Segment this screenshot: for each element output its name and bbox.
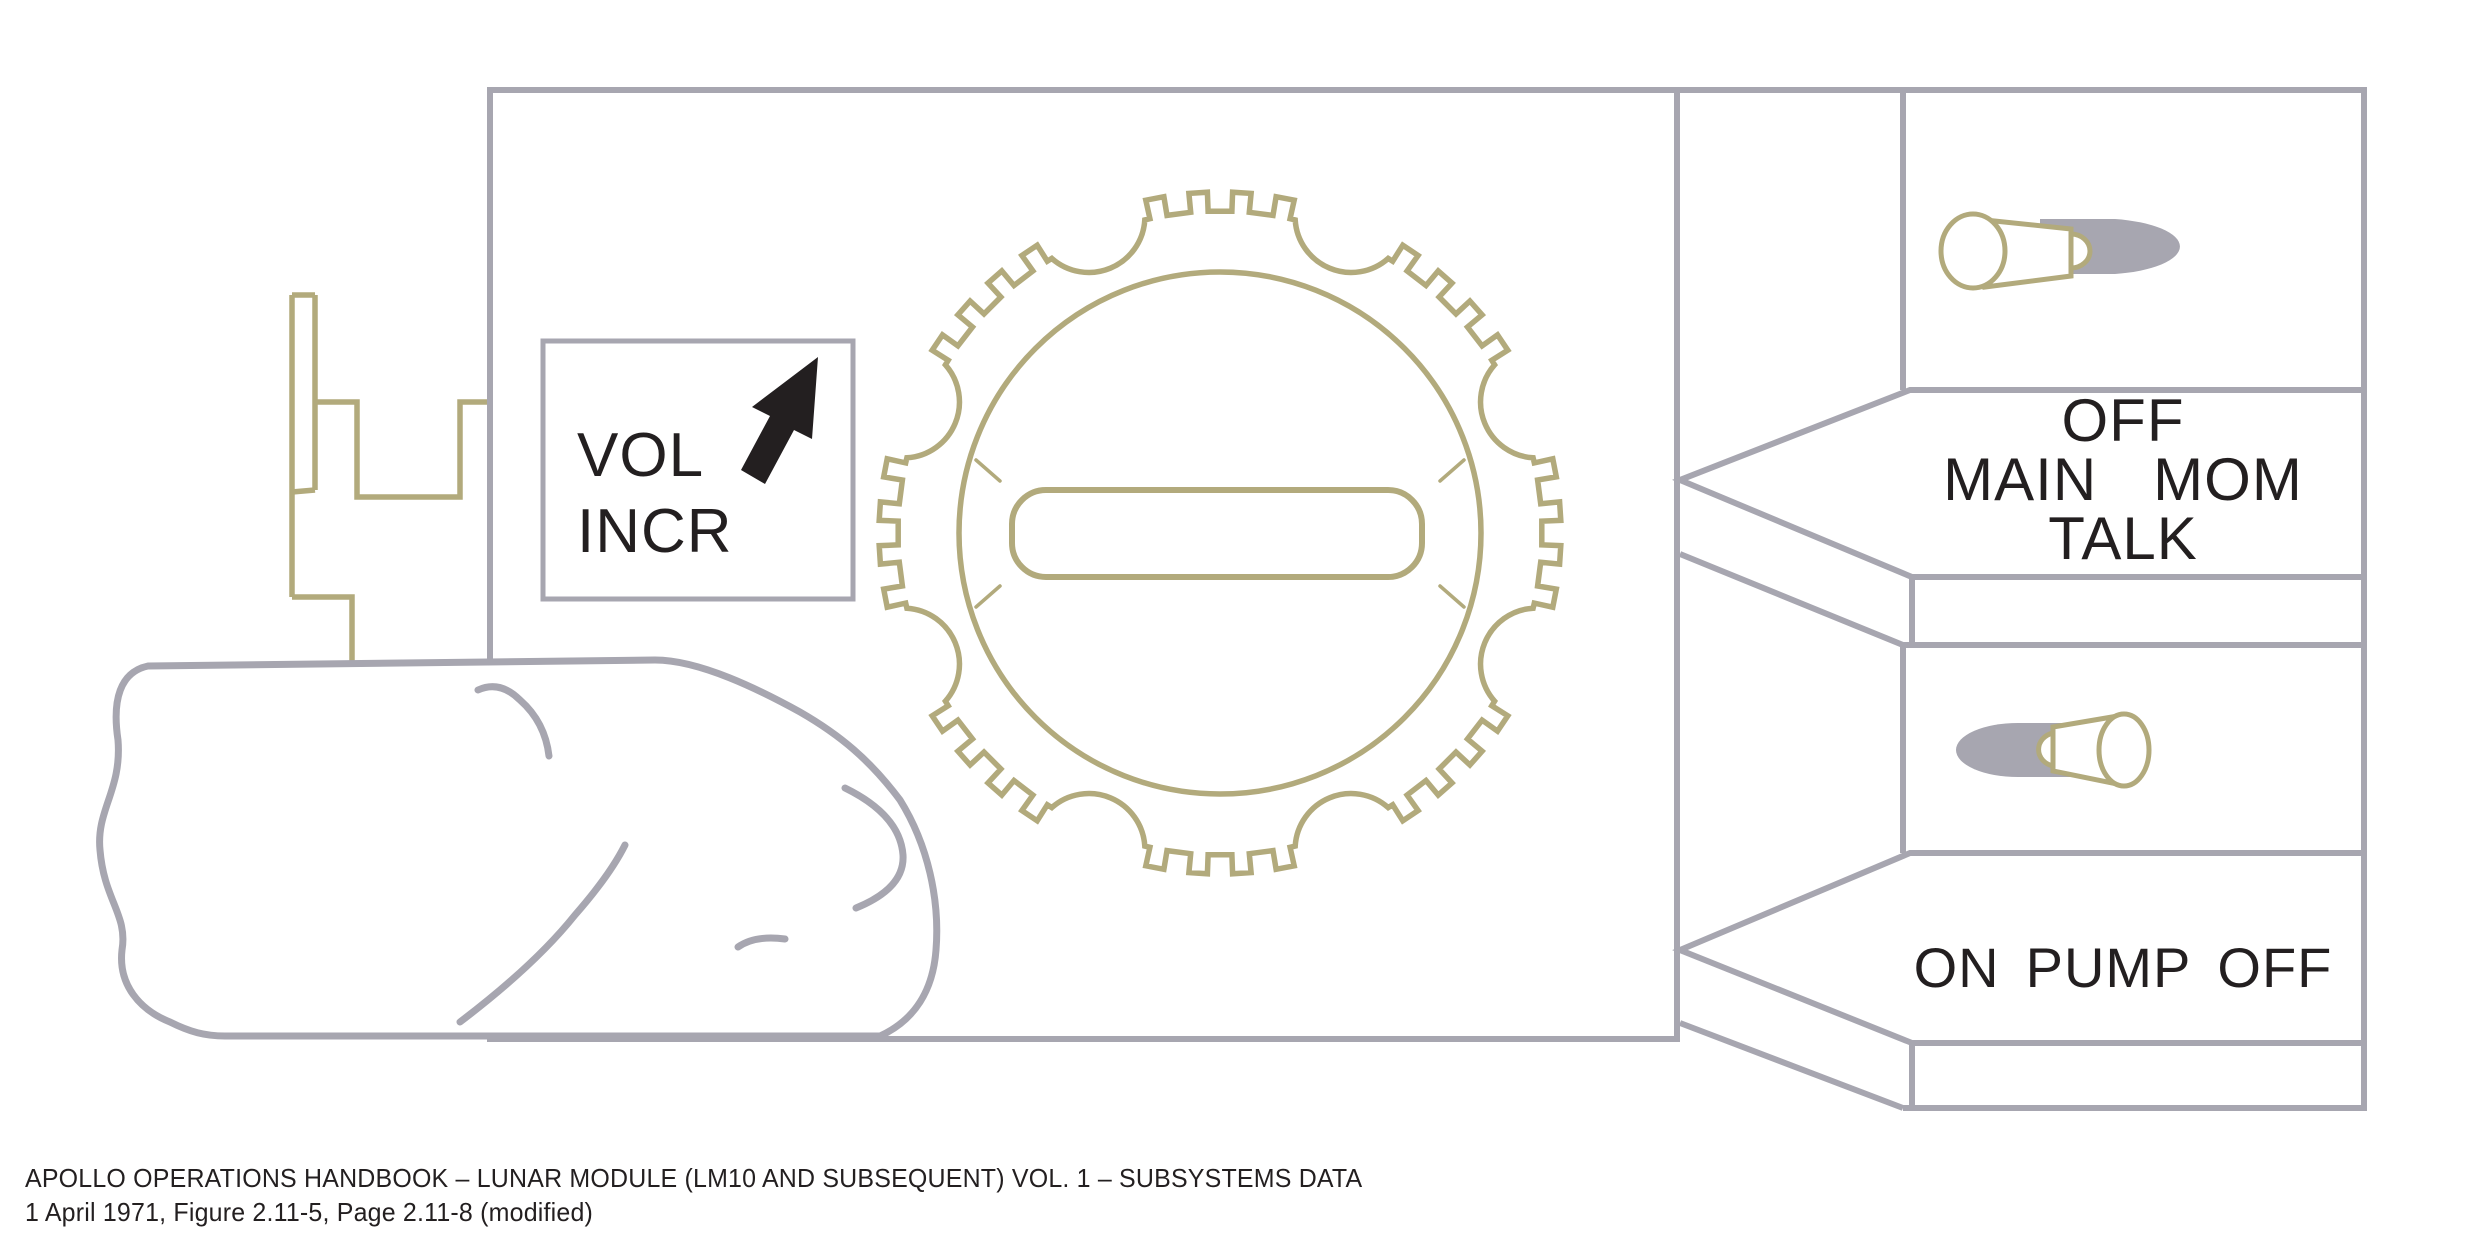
pump-switch-center-label: PUMP xyxy=(2026,940,2192,996)
talk-toggle-lever-icon[interactable] xyxy=(1941,214,2180,288)
thumbwheel-knurled-rim xyxy=(879,192,1561,874)
toggle-pivot-bracket xyxy=(2071,234,2090,268)
talk-switch-legend: OFF MAIN MOM TALK xyxy=(1880,391,2366,568)
caption-line-1: APOLLO OPERATIONS HANDBOOK – LUNAR MODUL… xyxy=(25,1161,1362,1195)
thumb-hand-icon xyxy=(100,660,937,1036)
thumbwheel-slot xyxy=(1012,490,1422,577)
diagram-art xyxy=(0,0,2479,1241)
thumbwheel-slot-ticks xyxy=(976,460,1464,607)
thumbwheel-face xyxy=(959,272,1481,794)
talk-switch-bottom-label: TALK xyxy=(2048,509,2198,568)
figure-page: VOL INCR OFF MAIN MOM TALK ON PUMP OFF A… xyxy=(0,0,2479,1241)
caption-line-2: 1 April 1971, Figure 2.11-5, Page 2.11-8… xyxy=(25,1195,1362,1229)
talk-switch-mid-row: MAIN MOM xyxy=(1943,450,2303,509)
talk-switch-top-label: OFF xyxy=(2062,391,2185,450)
toggle-tip xyxy=(1941,214,2005,288)
vol-incr-label: VOL INCR xyxy=(577,418,733,570)
thumbwheel-mount-profile-icon xyxy=(292,295,487,668)
talk-switch-right-label: MOM xyxy=(2153,450,2303,509)
toggle-tip xyxy=(2099,714,2149,786)
pump-switch-right-label: OFF xyxy=(2217,940,2332,996)
pump-toggle-lever-icon[interactable] xyxy=(1956,714,2149,786)
knurled-thumbwheel-icon[interactable] xyxy=(879,192,1561,874)
vol-label-line1: VOL xyxy=(577,418,733,494)
figure-caption: APOLLO OPERATIONS HANDBOOK – LUNAR MODUL… xyxy=(25,1161,1362,1229)
pump-switch-legend: ON PUMP OFF xyxy=(1880,940,2366,996)
vol-label-line2: INCR xyxy=(577,494,733,570)
pump-switch-left-label: ON xyxy=(1914,940,2000,996)
talk-switch-left-label: MAIN xyxy=(1943,450,2097,509)
arrow-up-right-icon xyxy=(741,357,818,484)
